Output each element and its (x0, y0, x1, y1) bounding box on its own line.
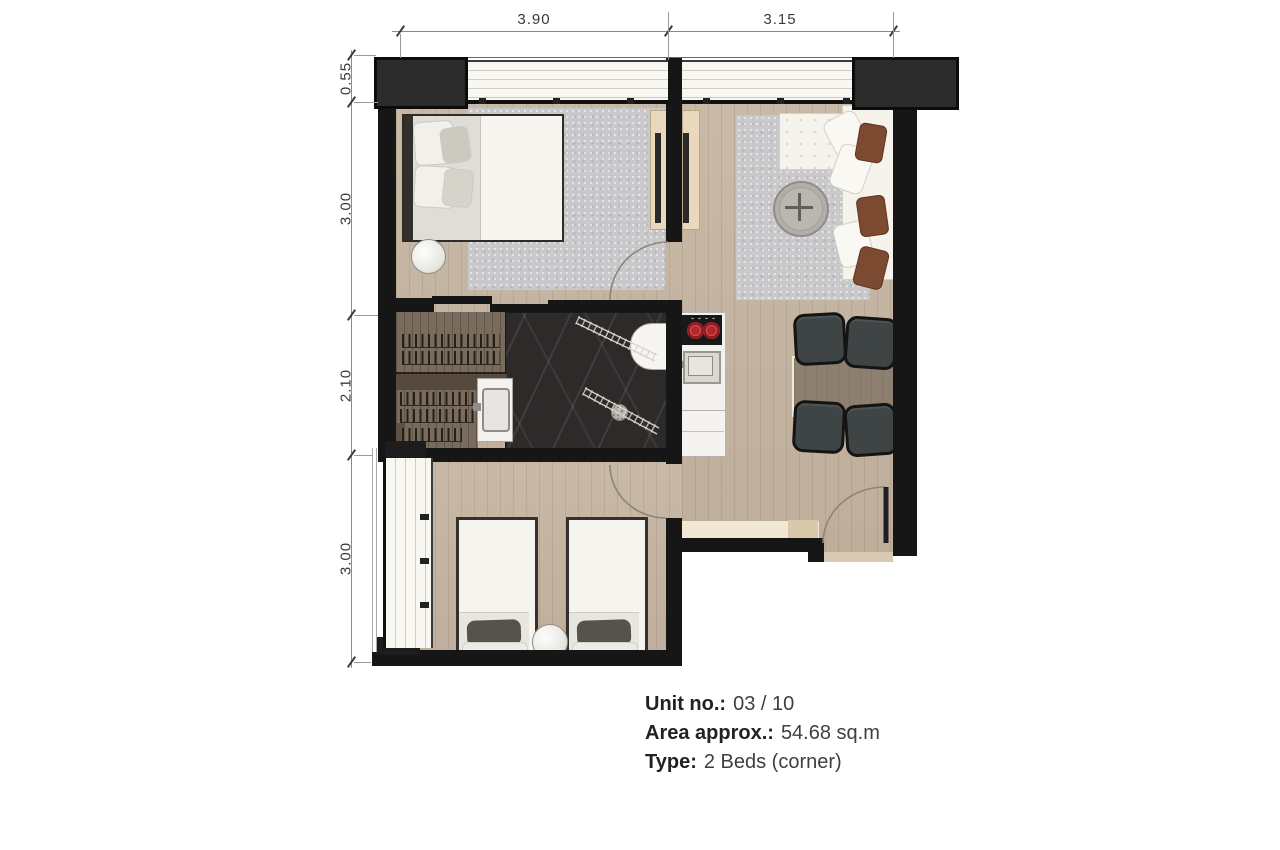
wall-entry-bottom (674, 538, 822, 552)
type-value: 2 Beds (corner) (704, 751, 842, 773)
unit-number-line: Unit no.:03 / 10 (645, 690, 880, 719)
burner (687, 322, 704, 339)
tv-bedroom (655, 133, 661, 223)
dining-chair (843, 315, 899, 371)
area-label: Area approx.: (645, 722, 774, 744)
hanger-rail (402, 334, 500, 348)
window-mullion (420, 514, 429, 520)
dimension-extension (893, 12, 894, 58)
area-line: Area approx.:54.68 sq.m (645, 719, 880, 748)
wash-basin (482, 388, 510, 432)
wall-bedroom1-bottom (548, 300, 668, 312)
dining-chair (843, 402, 899, 458)
window-mullion (420, 558, 429, 564)
dimension-line-top (392, 31, 900, 32)
burner (703, 322, 720, 339)
type-line: Type:2 Beds (corner) (645, 748, 880, 777)
dimension-height-2: 3.00 (338, 179, 355, 239)
window-bedroom2 (383, 458, 433, 648)
dimension-extension (354, 55, 376, 56)
pillow (439, 125, 473, 165)
window-mullion (777, 98, 784, 104)
type-label: Type: (645, 751, 697, 773)
window-mullion (843, 98, 850, 104)
hanger-rail (400, 392, 474, 406)
dimension-extension (354, 662, 371, 663)
window-rail (458, 57, 852, 58)
shower-drain (611, 404, 628, 421)
dimension-extension (400, 34, 401, 58)
dimension-height-3: 2.10 (338, 356, 355, 416)
wall-entry-jamb (808, 538, 824, 562)
wall-bedroom1-bottom (378, 298, 434, 312)
window-frame-left (372, 448, 377, 652)
entry-bench-end (788, 520, 818, 538)
closet-sliding-door (490, 304, 550, 312)
bedside-table (411, 239, 446, 274)
coffee-table (773, 181, 829, 237)
window-mullion (479, 98, 486, 104)
dining-chair (793, 312, 848, 367)
wall-partition-tv (666, 102, 682, 242)
floor-plan-page: 3.90 3.15 0.55 3.00 2.10 3.00 Unit no.:0… (0, 0, 1280, 850)
twin-bed-left (456, 517, 538, 664)
headboard (404, 116, 413, 240)
dimension-width-1: 3.90 (504, 11, 564, 28)
window-bedroom1 (458, 60, 668, 104)
hanger-rail (402, 428, 462, 442)
dimension-height-1: 0.55 (338, 49, 355, 109)
wall-left (378, 100, 396, 452)
wall-kitchen (666, 300, 682, 464)
dimension-height-4: 3.00 (338, 529, 355, 589)
area-value: 54.68 sq.m (781, 722, 880, 744)
entry-threshold (822, 552, 893, 562)
cooktop-controls (689, 317, 717, 320)
window-mullion (420, 602, 429, 608)
dimension-extension (668, 12, 669, 60)
unit-number-label: Unit no.: (645, 693, 726, 715)
twin-bed-right (566, 517, 648, 664)
unit-number-value: 03 / 10 (733, 693, 794, 715)
bed-duvet (480, 116, 562, 240)
window-mullion (627, 98, 634, 104)
hanger-rail (402, 351, 500, 365)
hanger-rail (400, 409, 474, 423)
window-mullion (703, 98, 710, 104)
dimension-extension (354, 455, 373, 456)
unit-info: Unit no.:03 / 10 Area approx.:54.68 sq.m… (645, 690, 880, 777)
dimension-width-2: 3.15 (750, 11, 810, 28)
dimension-extension (354, 102, 378, 103)
cabinet-divider (678, 431, 724, 432)
column-top-right (852, 57, 959, 110)
dining-chair (792, 400, 847, 455)
dimension-extension (354, 315, 378, 316)
pillow (441, 168, 475, 209)
window-mullion (553, 98, 560, 104)
column-top-left (374, 57, 468, 109)
sofa-cushion (855, 194, 889, 238)
basin-faucet (473, 403, 481, 411)
wall-right (893, 100, 917, 556)
sink-basin (688, 356, 713, 376)
wall-top-center (666, 58, 682, 104)
coffee-table-detail (798, 193, 801, 221)
closet-sliding-door (432, 296, 492, 304)
kitchen-cabinet (678, 410, 726, 457)
tv-living (683, 133, 689, 223)
